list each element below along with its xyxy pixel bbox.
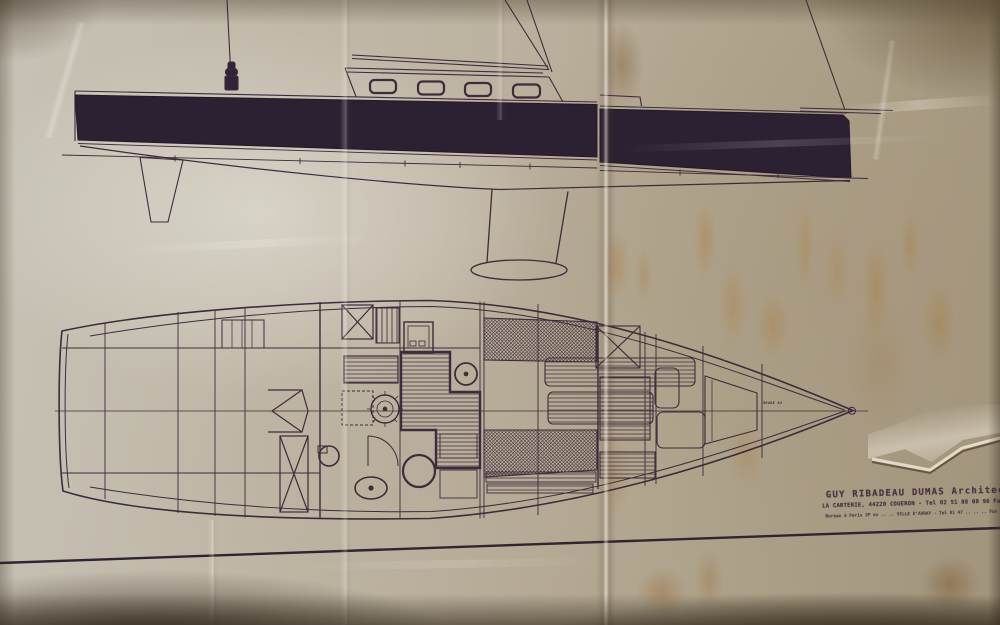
portlight-windows — [370, 80, 540, 98]
berth-slats-2 — [487, 484, 593, 493]
settee-starboard — [484, 318, 597, 362]
rudder — [140, 158, 183, 223]
hanging-locker-x — [280, 436, 308, 512]
fold-crease-center — [596, 0, 616, 625]
cabin-sole — [401, 352, 480, 468]
door-swing-arc — [368, 436, 398, 466]
heads-toilet — [318, 446, 387, 499]
deck-winch — [225, 62, 238, 90]
rigging-lines — [227, 0, 845, 110]
aft-locker — [222, 320, 264, 348]
galley-counter — [344, 356, 398, 383]
forestay — [806, 0, 845, 110]
fore-panel — [705, 376, 757, 444]
locker-small-2 — [440, 470, 477, 498]
boom — [352, 55, 548, 70]
berth-slats-1 — [486, 472, 596, 482]
hull-band — [75, 95, 851, 178]
plan-bow-label: GRADE AV — [763, 401, 782, 405]
shelf-slats — [376, 308, 399, 343]
crease-top — [496, 0, 506, 120]
keel-bulb — [471, 260, 567, 280]
crease-bottom-left — [208, 520, 218, 625]
sheet-border-line — [0, 528, 1000, 563]
photo-of-yacht-plan: GUY RIBADEAU DUMAS Architecte No LA CART… — [0, 0, 1000, 625]
fold-crease-left — [340, 0, 352, 625]
vberth-cushion-2 — [657, 412, 705, 448]
basin — [403, 455, 435, 487]
settee-port — [484, 430, 597, 477]
keel — [471, 190, 568, 281]
plan-view — [55, 301, 868, 520]
